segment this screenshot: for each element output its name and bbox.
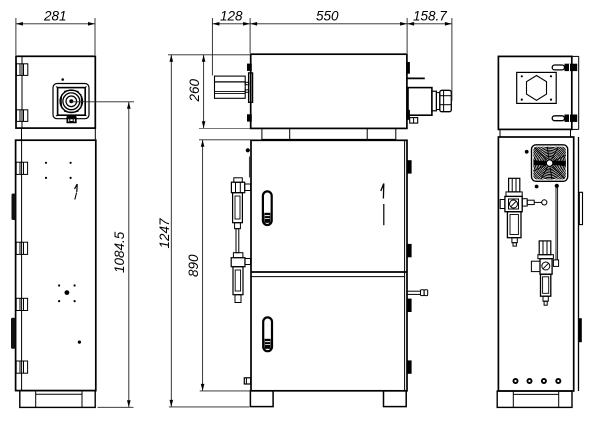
svg-text:158.7: 158.7 [413,9,447,24]
svg-text:260: 260 [187,78,202,102]
svg-text:550: 550 [316,9,339,24]
svg-text:128: 128 [220,9,243,24]
svg-text:1247: 1247 [157,218,172,249]
svg-text:281: 281 [43,9,67,24]
svg-text:1084.5: 1084.5 [112,231,127,273]
svg-text:890: 890 [186,254,201,277]
